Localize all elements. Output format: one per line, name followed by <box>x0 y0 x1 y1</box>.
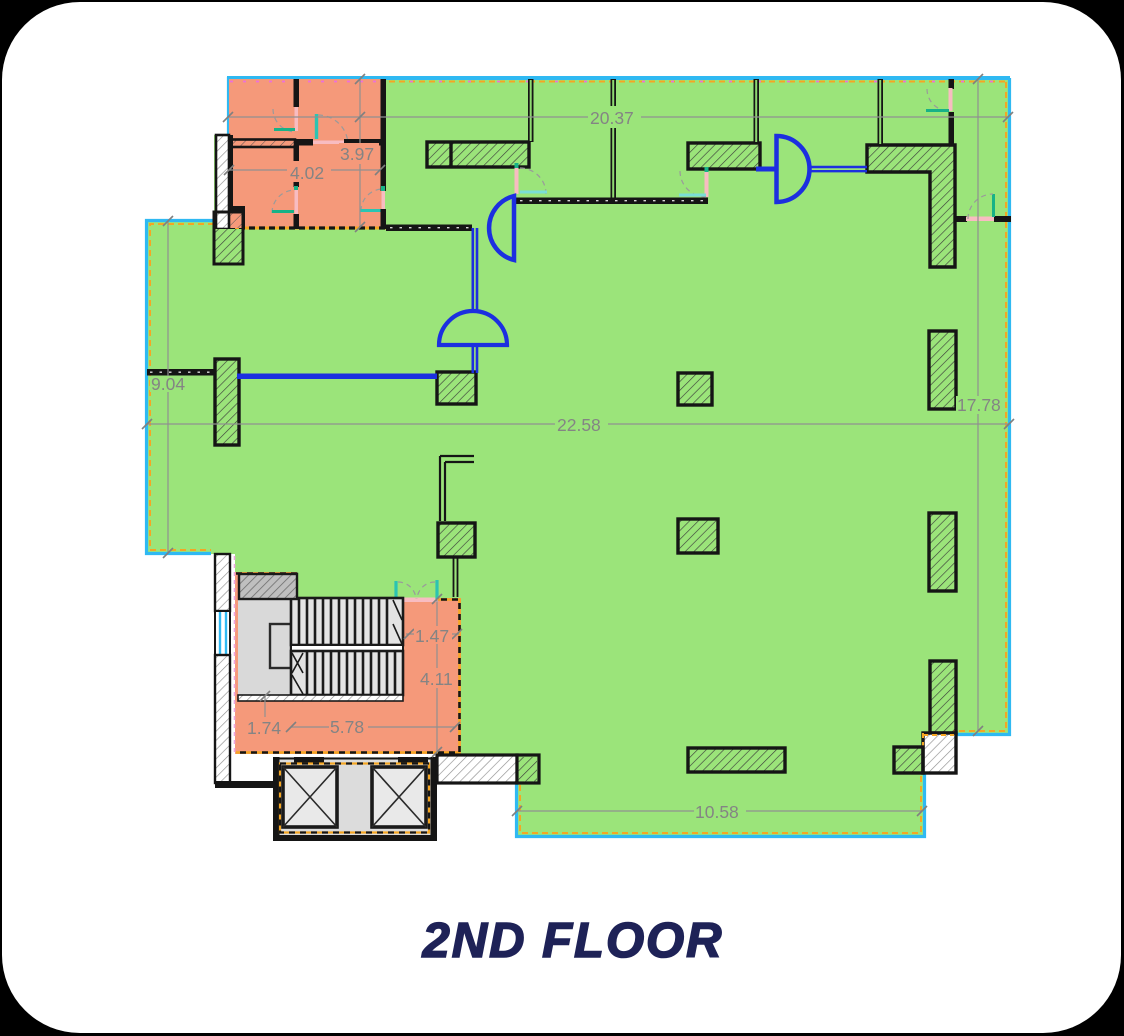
svg-text:1.47: 1.47 <box>415 626 449 646</box>
svg-text:4.11: 4.11 <box>420 669 453 689</box>
svg-text:4.02: 4.02 <box>290 163 324 183</box>
svg-text:5.78: 5.78 <box>330 717 364 737</box>
svg-text:22.58: 22.58 <box>557 415 601 435</box>
svg-text:3.97: 3.97 <box>340 144 374 164</box>
svg-text:1.74: 1.74 <box>247 718 281 738</box>
svg-text:9.04: 9.04 <box>151 374 185 394</box>
svg-text:20.37: 20.37 <box>590 108 634 128</box>
svg-text:10.58: 10.58 <box>695 802 739 822</box>
svg-text:17.78: 17.78 <box>957 395 1001 415</box>
